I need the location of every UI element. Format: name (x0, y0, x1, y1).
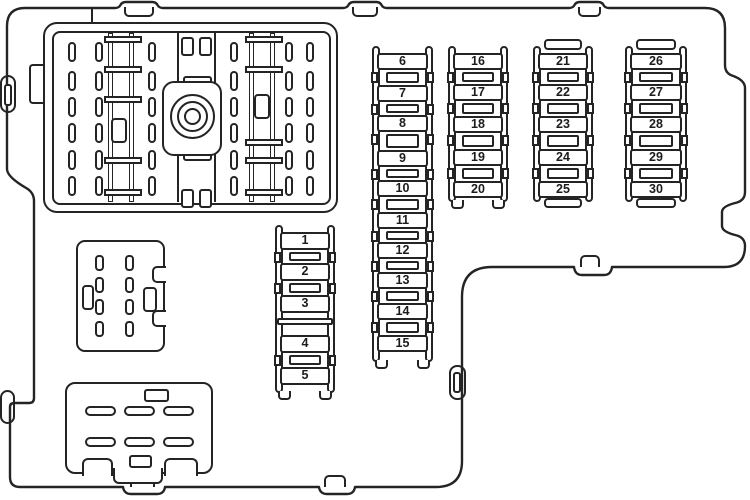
rail-notch (681, 103, 688, 114)
relay-pin-slot (285, 42, 293, 62)
busbar-slot (254, 94, 270, 119)
fuse-slot-8: 8 (377, 115, 428, 132)
relay-pin-slot (230, 97, 238, 117)
connector-pin-slot (95, 255, 104, 271)
busbar-crossbar (104, 157, 142, 164)
rail-notch (274, 283, 281, 294)
column-top-cap (544, 39, 582, 50)
busbar-crossbar (104, 96, 142, 103)
rail-notch (681, 168, 688, 179)
relay-pin-slot (95, 150, 103, 170)
spacer-slot (639, 168, 673, 179)
rail-notch (587, 72, 594, 83)
busbar-rail (270, 33, 275, 202)
connector-left-key-slot-b (143, 287, 157, 312)
relay-pin-slot (306, 71, 314, 91)
spacer-slot (289, 355, 321, 365)
relay-pin-slot (95, 71, 103, 91)
top-edge-tab-mid (352, 7, 378, 17)
connector-bottom-tab (113, 468, 163, 484)
rail-notch (532, 103, 539, 114)
fuse-slot-16: 16 (453, 53, 503, 70)
busbar-rail (249, 33, 254, 202)
relay-pin-slot (230, 176, 238, 196)
rail-notch (624, 72, 631, 83)
connector-pin-slot (95, 299, 104, 315)
step-edge-clip-slot (453, 372, 461, 393)
fuse-slot-24: 24 (538, 149, 588, 166)
connector-left-notch-upper (152, 266, 166, 283)
fuse-slot-21: 21 (538, 53, 588, 70)
fuse-slot-27: 27 (630, 84, 682, 101)
top-edge-tab-right (578, 7, 601, 17)
relay-pin-slot (285, 176, 293, 196)
rail-notch (274, 355, 281, 366)
fuse-slot-29: 29 (630, 149, 682, 166)
busbar-slot (111, 118, 127, 143)
fuse-slot-4: 4 (280, 335, 330, 353)
fuse-column-fuses-6-15: 6789101112131415 (372, 46, 433, 362)
connector-pin-slot (163, 437, 194, 447)
relay-pin-slot (68, 42, 76, 62)
relay-pin-slot (148, 123, 156, 143)
connector-pin-slot (124, 437, 155, 447)
rail-foot (319, 391, 332, 400)
relay-pin-slot (148, 150, 156, 170)
fuse-slot-5: 5 (280, 367, 330, 385)
rail-notch (371, 134, 378, 145)
relay-pin-slot (306, 123, 314, 143)
rail-notch (447, 135, 454, 146)
spacer-slot (386, 134, 419, 148)
fuse-column-fuses-26-30: 2627282930 (625, 46, 687, 202)
spacer-slot (386, 104, 419, 113)
rail-notch (502, 72, 509, 83)
center-slot-top-a (181, 37, 194, 56)
spacer-slot (386, 291, 419, 301)
spacer-slot (639, 135, 673, 147)
fuse-slot-1: 1 (280, 232, 330, 250)
fuse-box-diagram: 1234567891011121314151617181920212223242… (0, 0, 750, 500)
relay-pin-slot (230, 71, 238, 91)
bottom-edge-tab-mid (324, 475, 346, 487)
fuse-slot-20: 20 (453, 181, 503, 198)
busbar-crossbar (104, 66, 142, 73)
rail-notch (502, 103, 509, 114)
rail-notch (624, 135, 631, 146)
center-slot-bottom-b (199, 189, 212, 208)
relay-pin-slot (148, 42, 156, 62)
fuse-slot-12: 12 (377, 242, 428, 259)
rail-notch (329, 252, 336, 263)
connector-bottom-foot-cut-a (82, 458, 113, 476)
rail-notch (427, 291, 434, 302)
relay-pin-slot (148, 97, 156, 117)
relay-pin-slot (68, 71, 76, 91)
rail-notch (427, 322, 434, 333)
left-edge-clip-upper-slot (4, 84, 12, 106)
rail-notch (681, 135, 688, 146)
connector-left-notch-lower (152, 310, 166, 327)
rail-notch (587, 168, 594, 179)
relay-pin-slot (285, 97, 293, 117)
fuse-column-fuses-1-5: 12345 (275, 225, 335, 393)
relay-pin-slot (68, 150, 76, 170)
fuse-slot-28: 28 (630, 116, 682, 133)
busbar-rail (129, 33, 134, 202)
column-bottom-cap (636, 198, 676, 208)
rail-foot (278, 391, 291, 400)
spacer-slot (547, 168, 579, 179)
rail-notch (532, 135, 539, 146)
busbar-crossbar (245, 139, 283, 146)
relay-pin-slot (306, 176, 314, 196)
rail-notch (329, 283, 336, 294)
busbar-crossbar (245, 36, 283, 43)
connector-pin-slot (85, 406, 116, 416)
rail-foot (451, 200, 464, 209)
relay-pin-slot (230, 123, 238, 143)
spacer-slot (386, 169, 419, 178)
column-separator (277, 318, 333, 325)
rail-notch (427, 231, 434, 242)
rail-notch (371, 199, 378, 210)
rail-foot (375, 360, 388, 369)
connector-bottom-key-bottom (129, 455, 152, 468)
fuse-column-fuses-21-25: 2122232425 (533, 46, 593, 202)
top-edge-tab-left (124, 7, 154, 17)
rail-notch (371, 231, 378, 242)
spacer-slot (386, 261, 419, 270)
spacer-slot (386, 199, 419, 210)
connector-left-key-slot-a (82, 285, 94, 310)
center-slot-top-b (199, 37, 212, 56)
connector-pin-slot (95, 277, 104, 293)
rail-notch (587, 135, 594, 146)
fuse-slot-22: 22 (538, 84, 588, 101)
connector-bottom-key-top (144, 389, 169, 402)
spacer-slot (462, 103, 494, 114)
rail-notch (371, 322, 378, 333)
connector-pin-slot (125, 277, 134, 293)
connector-bottom-foot-cut-b (164, 458, 198, 476)
connector-pin-slot (125, 321, 134, 337)
fuse-slot-9: 9 (377, 150, 428, 167)
busbar-crossbar (104, 36, 142, 43)
rail-notch (427, 134, 434, 145)
spacer-slot (386, 322, 419, 333)
spacer-slot (462, 72, 494, 82)
rail-notch (427, 199, 434, 210)
fuse-slot-23: 23 (538, 116, 588, 133)
rail-notch (624, 168, 631, 179)
fuse-slot-2: 2 (280, 263, 330, 281)
relay-pin-slot (285, 123, 293, 143)
relay-pin-slot (230, 150, 238, 170)
rail-notch (329, 355, 336, 366)
rail-notch (681, 72, 688, 83)
relay-pin-slot (95, 123, 103, 143)
relay-pin-slot (95, 42, 103, 62)
rail-notch (371, 261, 378, 272)
spacer-slot (289, 252, 321, 261)
mold-line (91, 9, 93, 22)
connector-pin-slot (95, 321, 104, 337)
busbar-crossbar (245, 189, 283, 196)
relay-pin-slot (306, 150, 314, 170)
rail-notch (587, 103, 594, 114)
busbar-crossbar (104, 189, 142, 196)
rail-notch (427, 261, 434, 272)
rail-notch (532, 168, 539, 179)
right-wing-edge-tab (580, 255, 600, 267)
bolt-head (184, 108, 201, 125)
relay-pin-slot (68, 123, 76, 143)
spacer-slot (462, 135, 494, 147)
connector-pin-slot (124, 406, 155, 416)
rail-notch (447, 103, 454, 114)
spacer-slot (386, 231, 419, 240)
relay-pin-slot (95, 97, 103, 117)
rail-notch (371, 104, 378, 115)
fuse-slot-26: 26 (630, 53, 682, 70)
rail-notch (447, 168, 454, 179)
relay-pin-slot (306, 42, 314, 62)
relay-pin-slot (285, 150, 293, 170)
rail-notch (427, 72, 434, 83)
connector-pin-slot (125, 299, 134, 315)
busbar-crossbar (245, 157, 283, 164)
relay-pin-slot (68, 97, 76, 117)
connector-pin-slot (85, 437, 116, 447)
relay-pin-slot (306, 97, 314, 117)
spacer-slot (639, 103, 673, 114)
connector-pin-slot (125, 255, 134, 271)
spacer-slot (289, 283, 321, 293)
left-edge-clip-lower (0, 390, 15, 424)
relay-pin-slot (95, 176, 103, 196)
rail-notch (532, 72, 539, 83)
rail-foot (492, 200, 505, 209)
relay-pin-slot (148, 176, 156, 196)
rail-notch (427, 104, 434, 115)
rail-notch (371, 291, 378, 302)
fuse-slot-7: 7 (377, 85, 428, 102)
rail-notch (447, 72, 454, 83)
spacer-slot (547, 72, 579, 82)
fuse-slot-17: 17 (453, 84, 503, 101)
spacer-slot (462, 168, 494, 179)
spacer-slot (547, 103, 579, 114)
rail-notch (624, 103, 631, 114)
fuse-slot-18: 18 (453, 116, 503, 133)
spacer-slot (547, 135, 579, 147)
rail-notch (502, 168, 509, 179)
connector-pin-slot (163, 406, 194, 416)
busbar-crossbar (245, 66, 283, 73)
relay-pin-slot (230, 42, 238, 62)
relay-pin-slot (68, 176, 76, 196)
rail-notch (427, 169, 434, 180)
fuse-slot-10: 10 (377, 180, 428, 197)
fuse-slot-6: 6 (377, 53, 428, 70)
relay-pin-slot (285, 71, 293, 91)
rail-notch (502, 135, 509, 146)
rail-notch (274, 252, 281, 263)
relay-pin-slot (148, 71, 156, 91)
fuse-slot-14: 14 (377, 303, 428, 320)
fuse-slot-15: 15 (377, 335, 428, 352)
spacer-slot (386, 72, 419, 83)
fuse-slot-19: 19 (453, 149, 503, 166)
fuse-slot-25: 25 (538, 181, 588, 198)
fuse-slot-3: 3 (280, 295, 330, 313)
column-top-cap (636, 39, 676, 50)
center-slot-bottom-a (181, 189, 194, 208)
fuse-slot-30: 30 (630, 181, 682, 198)
rail-notch (371, 169, 378, 180)
rail-foot (417, 360, 430, 369)
fuse-slot-13: 13 (377, 272, 428, 289)
column-bottom-cap (544, 198, 582, 208)
fuse-column-fuses-16-20: 1617181920 (448, 46, 508, 202)
spacer-slot (639, 72, 673, 82)
rail-notch (371, 72, 378, 83)
fuse-slot-11: 11 (377, 212, 428, 229)
